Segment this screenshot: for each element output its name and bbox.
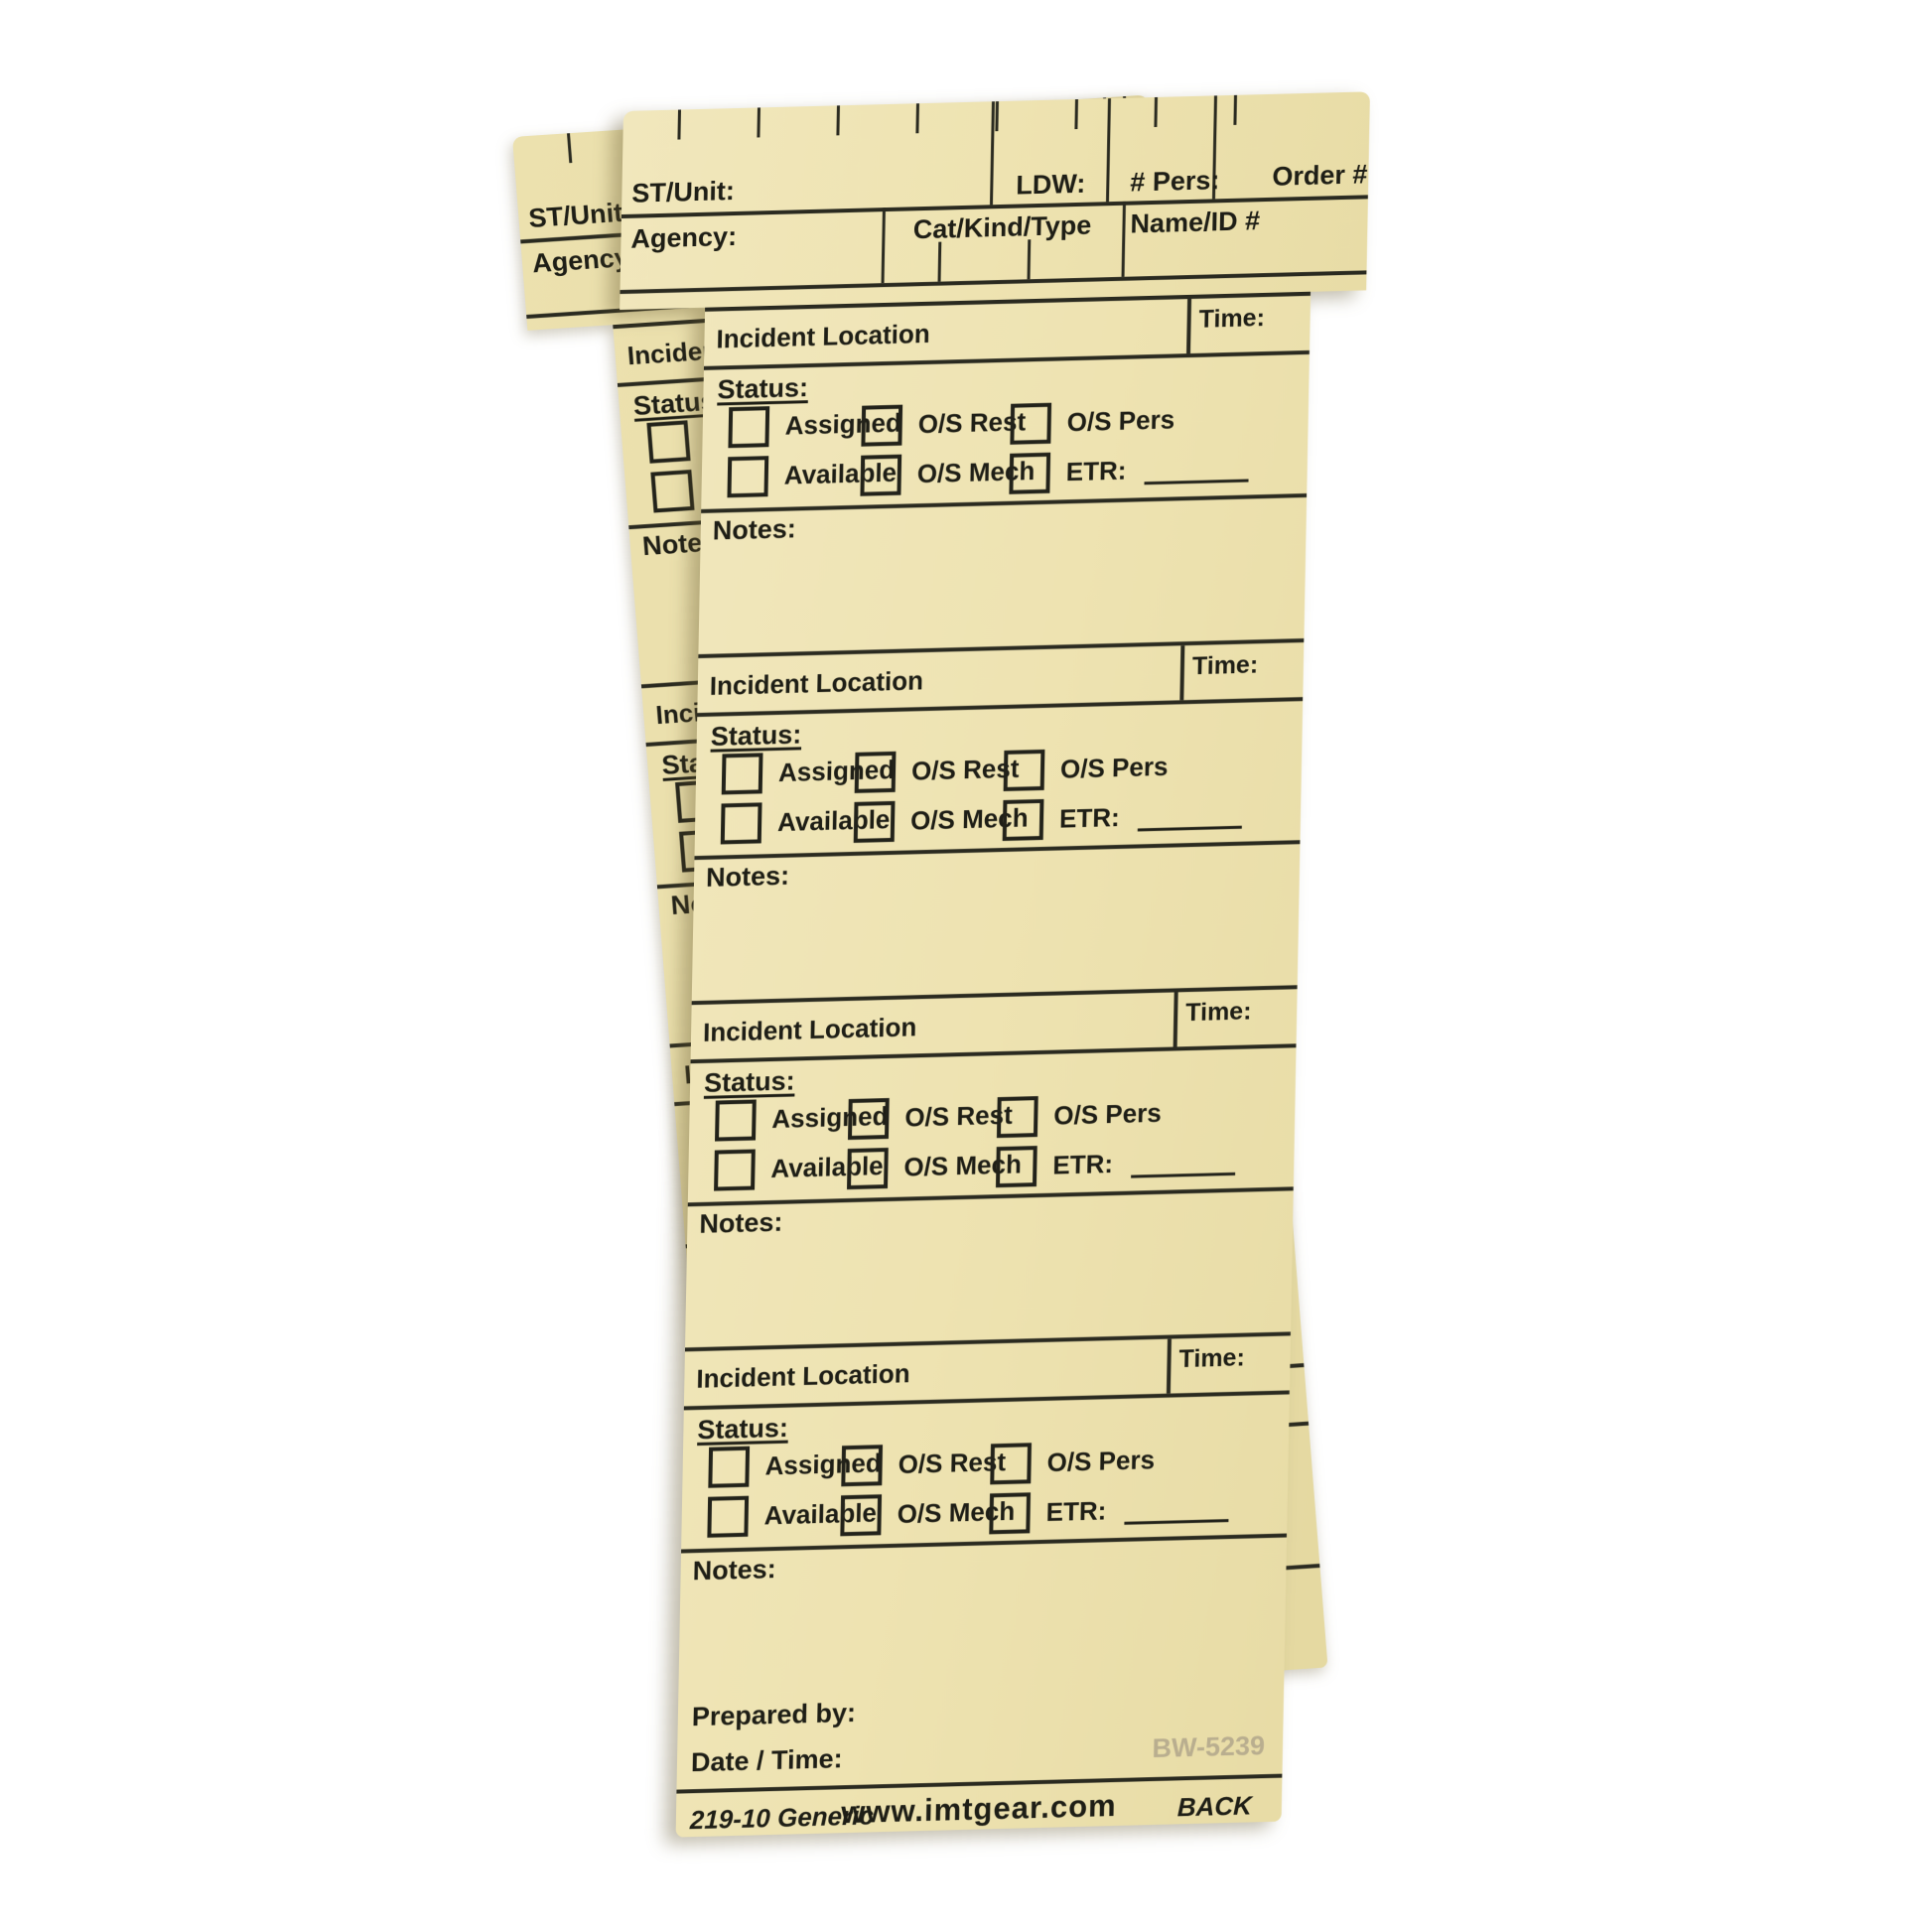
column-divider [1106, 98, 1111, 202]
etr-write-in-line [1137, 800, 1242, 832]
os-pers-label: O/S Pers [1066, 404, 1174, 438]
os-rest-checkbox [848, 1098, 890, 1140]
etr-checkbox [1009, 453, 1050, 494]
os-pers-checkbox [997, 1096, 1038, 1138]
etr-option: ETR: [989, 1487, 1228, 1534]
incident-location-label: Incident Location [703, 1012, 917, 1048]
os-rest-option: O/S Rest [861, 401, 1026, 446]
etr-label: ETR: [1059, 802, 1120, 835]
card-side-label: BACK [1177, 1790, 1253, 1823]
hour-tick [915, 103, 919, 133]
os-pers-checkbox [1010, 403, 1051, 445]
notes-label: Notes: [713, 513, 797, 546]
etr-label: ETR: [1065, 456, 1126, 488]
time-label: Time: [1198, 304, 1265, 335]
os-mech-checkbox [840, 1494, 882, 1536]
available-checkbox [707, 1496, 749, 1538]
available-checkbox [650, 470, 694, 513]
etr-option: ETR: [996, 1141, 1235, 1187]
front-card-header-tab: ST/Unit: LDW: # Pers: Order # Agency: Ca… [620, 91, 1370, 310]
available-checkbox [721, 802, 762, 844]
column-divider [990, 101, 995, 205]
notes-label: Notes: [706, 861, 790, 894]
time-cell: Time: [1179, 642, 1304, 700]
name-id-label: Name/ID # [1130, 206, 1260, 239]
etr-write-in-line [1124, 1493, 1229, 1525]
etr-label: ETR: [1045, 1495, 1106, 1528]
os-rest-checkbox [841, 1445, 883, 1486]
incident-location-label: Incident Location [696, 1358, 910, 1395]
status-section: Incident Location Time: Status: Assigned… [685, 985, 1298, 1347]
os-pers-option: O/S Pers [997, 1093, 1162, 1138]
etr-label: ETR: [1052, 1149, 1113, 1181]
os-pers-option: O/S Pers [990, 1440, 1155, 1484]
os-pers-label: O/S Pers [1053, 1098, 1162, 1132]
status-section: Incident Location Time: Status: Assigned… [678, 1331, 1291, 1694]
status-label: Status: [704, 1065, 795, 1098]
incident-location-label: Incident Location [716, 319, 930, 355]
os-rest-option: O/S Rest [855, 749, 1020, 793]
status-area: Status: Assigned Available O/S Rest O/S … [701, 354, 1310, 513]
os-pers-label: O/S Pers [1060, 752, 1169, 785]
os-rest-checkbox [861, 405, 902, 447]
etr-checkbox [996, 1146, 1037, 1187]
front-card-body: Incident Location Time: Status: Assigned… [676, 292, 1311, 1838]
date-time-label: Date / Time: [691, 1743, 843, 1778]
os-mech-checkbox [860, 455, 901, 496]
st-unit-label: ST/Unit: [527, 197, 632, 234]
time-cell: Time: [1173, 989, 1298, 1046]
status-label: Status: [717, 372, 808, 405]
status-area: Status: Assigned Available O/S Rest O/S … [694, 701, 1303, 860]
cat-kind-type-divider [1028, 239, 1032, 279]
prepared-by-block: Prepared by: Date / Time: BW-5239 [676, 1679, 1284, 1794]
hour-tick [677, 109, 681, 139]
hour-tick [836, 105, 840, 135]
notes-label: Notes: [692, 1554, 776, 1587]
os-rest-option: O/S Rest [841, 1442, 1006, 1486]
available-checkbox [714, 1150, 756, 1191]
hour-tick [567, 133, 572, 163]
st-unit-label: ST/Unit: [631, 176, 735, 209]
hour-tick [1233, 95, 1237, 125]
status-section: Incident Location Time: Status: Assigned… [692, 638, 1305, 1001]
assigned-checkbox [646, 420, 690, 464]
row-divider [620, 270, 1366, 294]
cat-kind-type-label: Cat/Kind/Type [882, 209, 1123, 246]
etr-checkbox [1003, 799, 1044, 841]
etr-option: ETR: [1003, 794, 1242, 841]
os-pers-label: O/S Pers [1046, 1445, 1155, 1478]
hour-tick [995, 101, 999, 131]
etr-checkbox [989, 1492, 1031, 1534]
hour-tick [1074, 99, 1078, 129]
notes-label: Notes: [699, 1207, 783, 1240]
etr-option: ETR: [1009, 448, 1248, 494]
os-mech-checkbox [854, 801, 896, 843]
os-rest-option: O/S Rest [848, 1095, 1013, 1140]
status-area: Status: Assigned Available O/S Rest O/S … [681, 1394, 1290, 1553]
os-pers-option: O/S Pers [1010, 399, 1174, 444]
available-checkbox [727, 456, 768, 497]
time-label: Time: [1185, 997, 1252, 1028]
hour-tick [1154, 97, 1158, 127]
order-number-label: Order # [1272, 159, 1368, 193]
ldw-label: LDW: [1016, 169, 1086, 202]
etr-write-in-line [1131, 1147, 1236, 1178]
prepared-by-label: Prepared by: [692, 1698, 857, 1732]
status-label: Status: [697, 1413, 788, 1446]
assigned-checkbox [728, 406, 769, 448]
status-area: Status: Assigned Available O/S Rest O/S … [688, 1047, 1297, 1206]
etr-write-in-line [1144, 454, 1249, 485]
product-code-watermark: BW-5239 [1152, 1730, 1265, 1764]
assigned-checkbox [708, 1447, 750, 1488]
assigned-checkbox [722, 753, 763, 794]
incident-location-label: Incident Location [710, 665, 924, 702]
os-pers-checkbox [990, 1443, 1032, 1484]
os-pers-checkbox [1004, 750, 1045, 791]
cat-kind-type-divider [938, 242, 942, 282]
os-mech-checkbox [847, 1148, 889, 1189]
time-cell: Time: [1186, 296, 1311, 353]
os-pers-option: O/S Pers [1004, 747, 1169, 791]
time-cell: Time: [1167, 1335, 1291, 1393]
status-label: Status: [711, 719, 802, 752]
time-label: Time: [1178, 1344, 1245, 1375]
status-section: Incident Location Time: Status: Assigned… [698, 292, 1311, 654]
product-photo: ST/Unit: LDW: # Pers: Order # Agency: Ca… [0, 0, 1932, 1932]
agency-label: Agency: [630, 221, 737, 255]
os-rest-checkbox [855, 752, 897, 793]
num-pers-label: # Pers: [1130, 165, 1220, 198]
time-label: Time: [1192, 650, 1259, 681]
assigned-checkbox [715, 1099, 757, 1141]
hour-tick [757, 107, 760, 137]
